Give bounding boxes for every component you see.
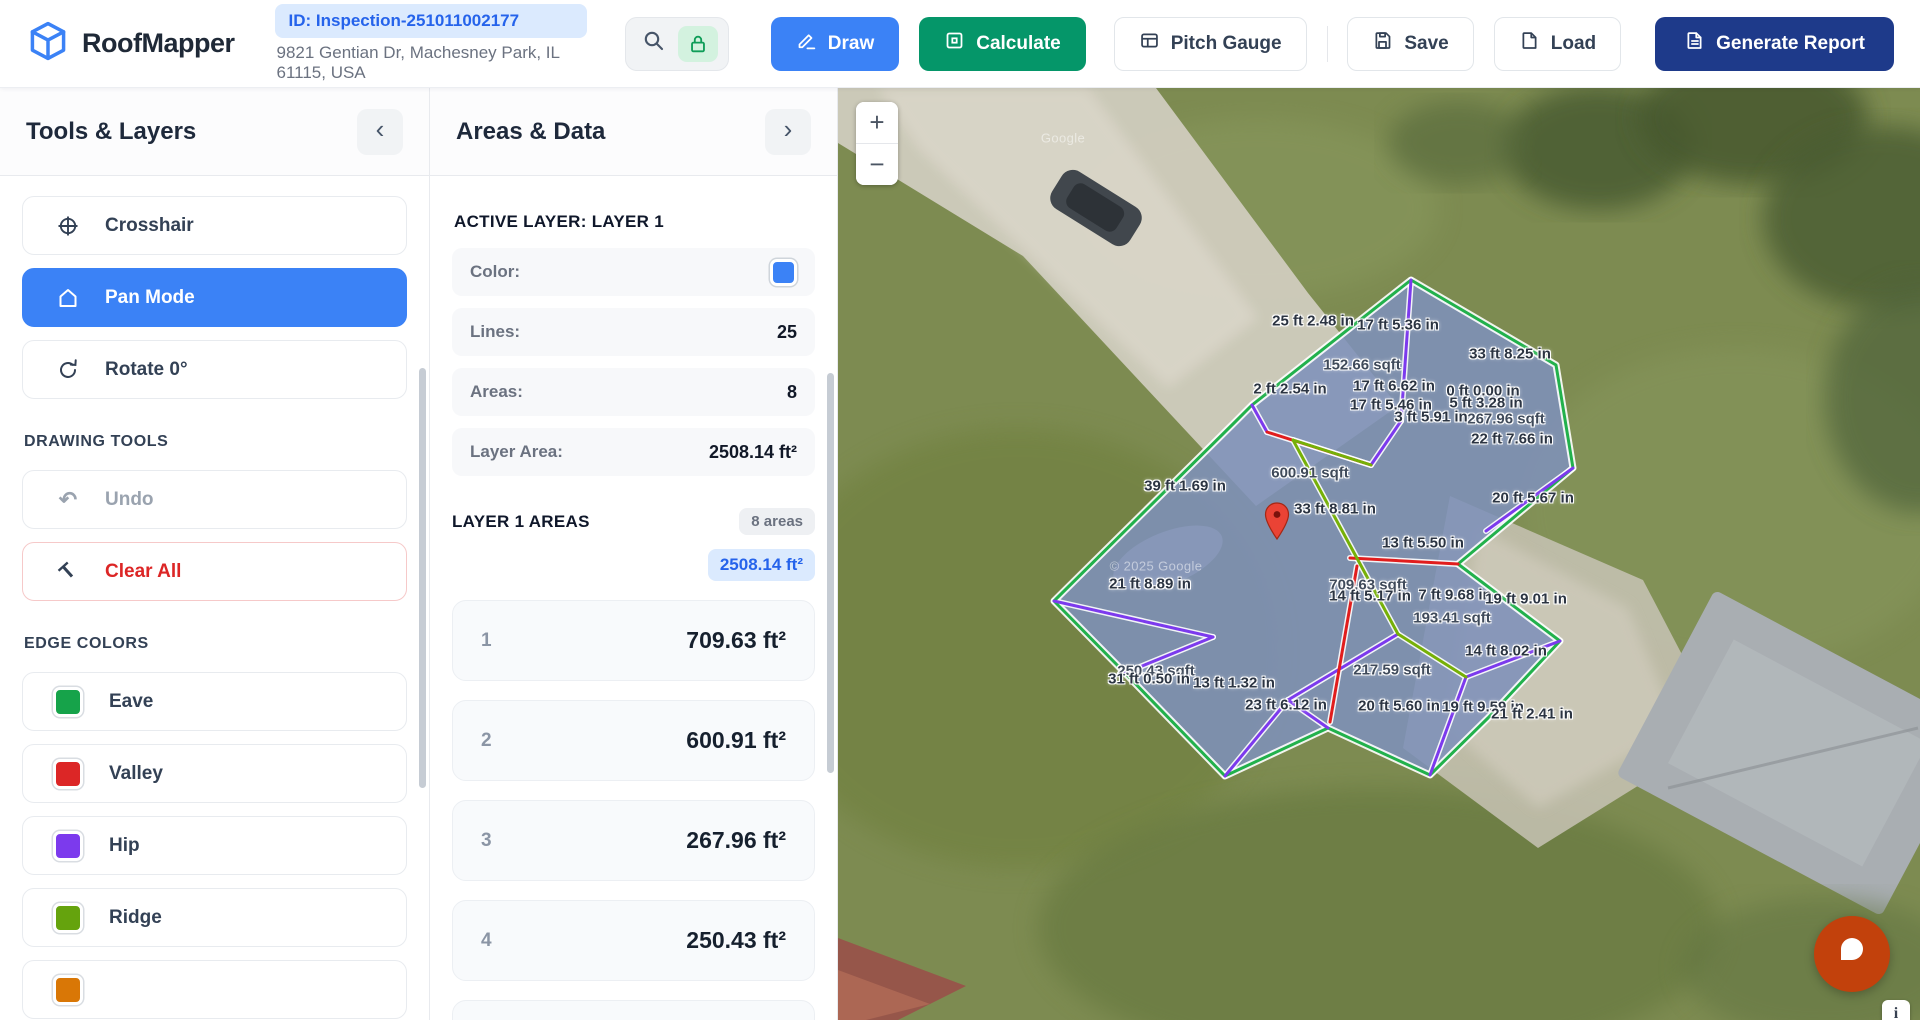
load-button[interactable]: Load — [1494, 17, 1621, 71]
crosshair-tool-button[interactable]: Crosshair — [22, 196, 407, 255]
map-measurement-label: 21 ft 8.89 in — [1109, 576, 1191, 593]
map-measurement-label: 20 ft 5.60 in — [1358, 698, 1440, 715]
collapse-panel-button[interactable]: ‹ — [357, 109, 403, 155]
map-pin[interactable] — [1264, 502, 1290, 545]
map-measurement-label: 33 ft 8.81 in — [1294, 501, 1376, 518]
pencil-icon — [796, 30, 817, 57]
map-measurement-label: 21 ft 2.41 in — [1491, 706, 1573, 723]
drawing-tools-heading: DRAWING TOOLS — [24, 433, 405, 451]
map-measurement-label: 217.59 sqft — [1353, 662, 1431, 679]
draw-button[interactable]: Draw — [771, 17, 899, 71]
area-row-2[interactable]: 2 600.91 ft² — [452, 700, 815, 781]
total-area-badge: 2508.14 ft² — [708, 549, 815, 581]
save-icon — [1372, 30, 1393, 57]
tools-layers-panel: Tools & Layers ‹ Crosshair Pan Mode — [0, 88, 430, 1020]
map-measurement-label: 17 ft 6.62 in — [1353, 378, 1435, 395]
active-layer-heading: ACTIVE LAYER: LAYER 1 — [454, 212, 813, 232]
layer-area-value: 2508.14 ft² — [709, 442, 797, 463]
lines-count-value: 25 — [777, 322, 797, 343]
pitch-gauge-button[interactable]: Pitch Gauge — [1114, 17, 1307, 71]
map-measurement-label: 25 ft 2.48 in — [1272, 313, 1354, 330]
roof-overlay[interactable] — [838, 88, 1920, 1020]
lines-count-row: Lines: 25 — [452, 308, 815, 356]
map-measurement-label: 152.66 sqft — [1323, 357, 1401, 374]
layer-areas-heading: LAYER 1 AREAS — [452, 512, 590, 532]
edge-color-partial[interactable] — [22, 960, 407, 1019]
map-measurement-label: 17 ft 5.36 in — [1357, 317, 1439, 334]
pan-mode-tool-button[interactable]: Pan Mode — [22, 268, 407, 327]
map-measurement-label: 193.41 sqft — [1413, 610, 1491, 627]
areas-panel-title: Areas & Data — [456, 118, 605, 146]
app-title: RoofMapper — [82, 28, 235, 59]
area-list: 1 709.63 ft² 2 600.91 ft² 3 267.96 ft² 4… — [452, 600, 815, 1020]
map-measurement-label: 7 ft 9.68 in — [1418, 587, 1491, 604]
clear-all-button[interactable]: T Clear All — [22, 542, 407, 601]
map-zoom-control: + − — [856, 102, 898, 185]
area-row-4[interactable]: 4 250.43 ft² — [452, 900, 815, 981]
satellite-map[interactable]: + − Google © 2025 Google i 25 ft 2.48 in… — [838, 88, 1920, 1020]
map-measurement-label: 3 ft 5.91 in — [1394, 409, 1467, 426]
tools-panel-scrollbar[interactable] — [419, 368, 426, 788]
cube-logo-icon — [26, 19, 70, 68]
map-measurement-label: 13 ft 5.50 in — [1382, 535, 1464, 552]
google-copyright-watermark: © 2025 Google — [1110, 559, 1203, 574]
tools-panel-title: Tools & Layers — [26, 118, 196, 146]
zoom-in-button[interactable]: + — [856, 102, 898, 143]
search-group — [625, 17, 729, 71]
rotate-icon — [55, 358, 81, 382]
edge-color-ridge[interactable]: Ridge — [22, 888, 407, 947]
google-watermark: Google — [1041, 131, 1085, 146]
layer-color-swatch[interactable] — [770, 259, 797, 286]
map-measurement-label: 14 ft 8.02 in — [1465, 643, 1547, 660]
expand-panel-button[interactable]: › — [765, 109, 811, 155]
areas-count-row: Areas: 8 — [452, 368, 815, 416]
map-measurement-label: 19 ft 9.01 in — [1485, 591, 1567, 608]
report-icon — [1684, 30, 1705, 57]
hip-color-swatch — [53, 831, 83, 861]
map-measurement-label: 600.91 sqft — [1271, 465, 1349, 482]
pitch-gauge-icon — [1139, 30, 1160, 57]
ridge-color-swatch — [53, 903, 83, 933]
chevron-left-icon: ‹ — [376, 114, 385, 145]
undo-button[interactable]: ↶ Undo — [22, 470, 407, 529]
generate-report-button[interactable]: Generate Report — [1655, 17, 1894, 71]
map-measurement-label: 14 ft 5.17 in — [1329, 588, 1411, 605]
map-measurement-label: 2 ft 2.54 in — [1253, 381, 1326, 398]
inspection-id-badge: ID: Inspection-251011002177 — [275, 4, 587, 38]
partial-color-swatch — [53, 975, 83, 1005]
map-measurement-label: 33 ft 8.25 in — [1469, 346, 1551, 363]
rotate-tool-button[interactable]: Rotate 0° — [22, 340, 407, 399]
property-address: 9821 Gentian Dr, Machesney Park, IL 6111… — [275, 43, 587, 83]
calculate-button[interactable]: Calculate — [919, 17, 1085, 71]
clear-icon: T — [50, 554, 85, 589]
chat-button[interactable] — [1814, 916, 1890, 992]
map-measurement-label: 13 ft 1.32 in — [1193, 675, 1275, 692]
save-button[interactable]: Save — [1347, 17, 1473, 71]
calculate-icon — [944, 30, 965, 57]
eave-color-swatch — [53, 687, 83, 717]
area-row-1[interactable]: 1 709.63 ft² — [452, 600, 815, 681]
map-measurement-label: 23 ft 6.12 in — [1245, 697, 1327, 714]
home-icon — [55, 286, 81, 310]
roofmapper-app: { "header": { "app_name": "RoofMapper", … — [0, 0, 1920, 1020]
undo-icon: ↶ — [55, 487, 81, 513]
edge-color-valley[interactable]: Valley — [22, 744, 407, 803]
areas-count-badge: 8 areas — [739, 508, 815, 535]
app-logo: RoofMapper — [26, 19, 235, 68]
areas-count-value: 8 — [787, 382, 797, 403]
chat-bubble-icon — [1833, 933, 1871, 976]
area-row-5[interactable]: 5 247.56 ft² — [452, 1000, 815, 1020]
area-row-3[interactable]: 3 267.96 ft² — [452, 800, 815, 881]
chevron-right-icon: › — [784, 114, 793, 145]
map-measurement-label: 267.96 sqft — [1467, 411, 1545, 428]
areas-data-panel: Areas & Data › ACTIVE LAYER: LAYER 1 Col… — [430, 88, 838, 1020]
map-measurement-label: 20 ft 5.67 in — [1492, 490, 1574, 507]
zoom-out-button[interactable]: − — [856, 144, 898, 185]
map-measurement-label: 39 ft 1.69 in — [1144, 478, 1226, 495]
layer-color-row: Color: — [452, 248, 815, 296]
edge-colors-heading: EDGE COLORS — [24, 635, 405, 653]
layer-area-row: Layer Area: 2508.14 ft² — [452, 428, 815, 476]
edge-color-hip[interactable]: Hip — [22, 816, 407, 875]
map-measurement-label: 31 ft 0.50 in — [1108, 671, 1190, 688]
crosshair-icon — [55, 214, 81, 238]
map-measurement-label: 22 ft 7.66 in — [1471, 431, 1553, 448]
file-icon — [1519, 30, 1540, 57]
top-toolbar: RoofMapper ID: Inspection-251011002177 9… — [0, 0, 1920, 88]
toolbar-separator — [1327, 26, 1328, 62]
lock-button[interactable] — [678, 26, 718, 62]
inspection-info: ID: Inspection-251011002177 9821 Gentian… — [275, 4, 587, 83]
search-icon[interactable] — [642, 29, 666, 58]
map-info-button[interactable]: i — [1882, 1000, 1910, 1020]
edge-color-eave[interactable]: Eave — [22, 672, 407, 731]
valley-color-swatch — [53, 759, 83, 789]
areas-panel-scrollbar[interactable] — [827, 373, 834, 773]
